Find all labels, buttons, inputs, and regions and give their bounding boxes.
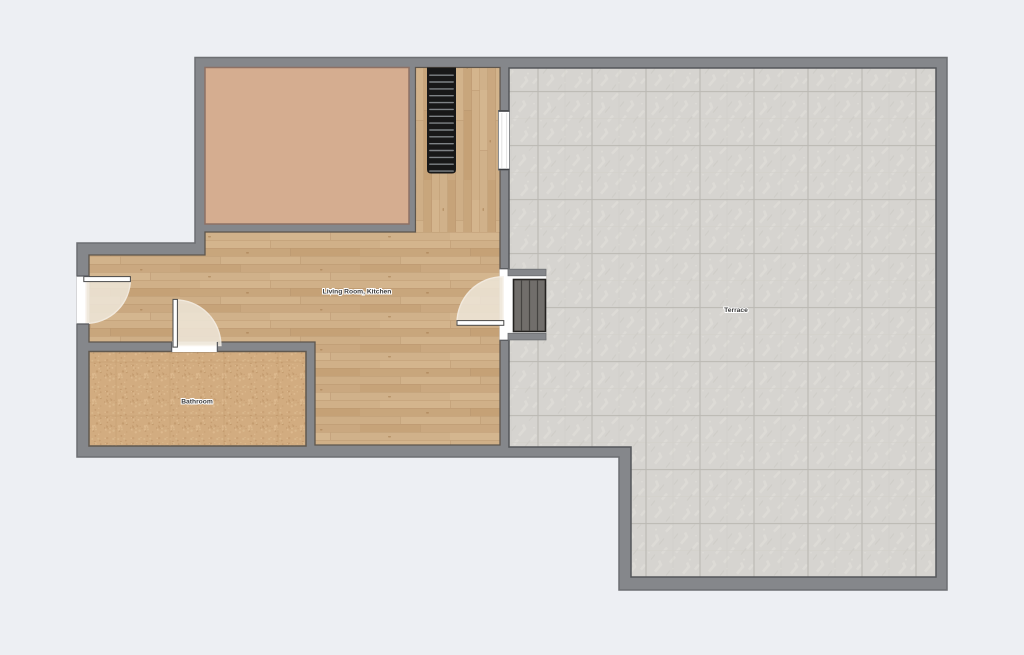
svg-text:Terrace: Terrace [724, 307, 748, 314]
svg-text:Living Room, Kitchen: Living Room, Kitchen [323, 289, 392, 296]
svg-text:Bathroom: Bathroom [181, 399, 213, 406]
